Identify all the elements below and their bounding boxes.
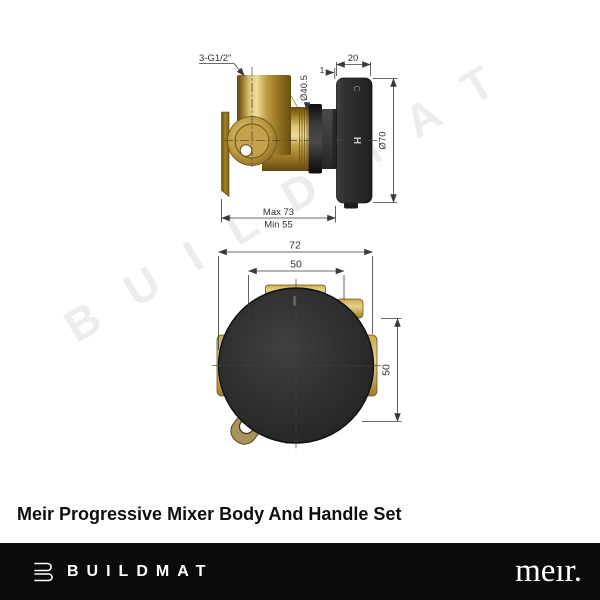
thread-size-label: 3-G1/2" bbox=[199, 53, 231, 64]
meir-logo: meır. bbox=[515, 555, 582, 588]
product-title: Meir Progressive Mixer Body And Handle S… bbox=[17, 504, 401, 525]
cold-marker: C bbox=[352, 86, 361, 92]
handle-bottom-tab bbox=[344, 203, 358, 209]
overall-width-dim: 72 bbox=[289, 240, 301, 252]
trim-ring bbox=[309, 104, 323, 174]
rough-in-max-dim: Max 73 bbox=[263, 207, 294, 218]
body-diameter-dim: Ø40.5 bbox=[299, 75, 310, 101]
threaded-section bbox=[297, 107, 309, 171]
side-view: 3-G1/2" 20 1 Ø40.5 Ø70 Max 73 Min 55 bbox=[199, 53, 398, 231]
mounting-plate bbox=[222, 112, 230, 197]
handle-diameter-dim: Ø70 bbox=[378, 132, 389, 150]
etched-logo-mark bbox=[294, 296, 296, 306]
vertical-centres-dim: 50 bbox=[381, 364, 393, 376]
handle-depth-dim: 20 bbox=[348, 53, 359, 64]
horizontal-centres-dim: 50 bbox=[290, 259, 302, 271]
body-chamfer-edge bbox=[291, 96, 298, 108]
hot-marker: H bbox=[351, 137, 362, 144]
face-offset-dim: 1 bbox=[320, 65, 325, 75]
buildmat-logo-icon bbox=[32, 560, 58, 584]
fixing-hole bbox=[240, 145, 252, 157]
footer-bar: BUILDMAT meır. bbox=[0, 543, 600, 600]
handle-adapter bbox=[322, 109, 337, 169]
rough-in-min-dim: Min 55 bbox=[264, 220, 293, 231]
buildmat-wordmark: BUILDMAT bbox=[67, 563, 213, 581]
front-view: 72 50 50 bbox=[212, 240, 402, 452]
